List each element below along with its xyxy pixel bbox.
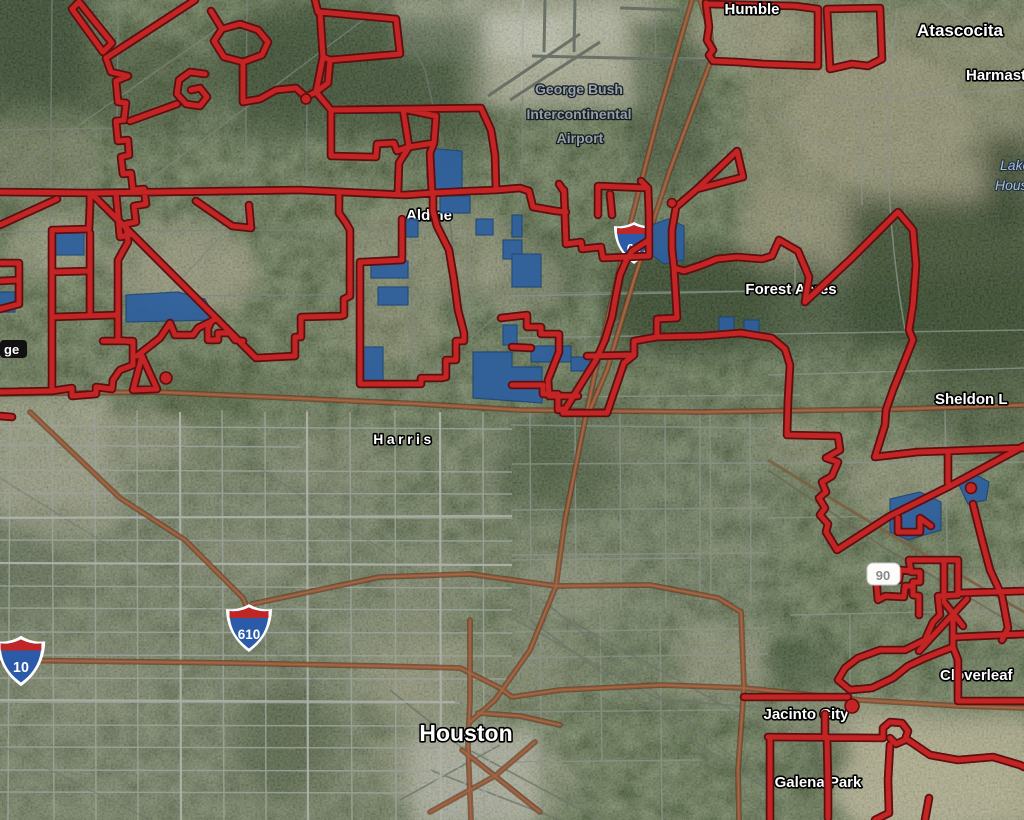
svg-text:Humble: Humble xyxy=(724,1,779,18)
svg-text:George Bush: George Bush xyxy=(535,81,623,97)
svg-text:Airport: Airport xyxy=(557,130,604,146)
svg-text:Intercontinental: Intercontinental xyxy=(526,106,631,122)
svg-text:Harmast: Harmast xyxy=(966,67,1024,84)
svg-text:Jacinto City: Jacinto City xyxy=(763,706,849,723)
svg-text:Galena Park: Galena Park xyxy=(775,774,862,791)
svg-text:Cloverleaf: Cloverleaf xyxy=(940,667,1014,684)
svg-text:Houston: Houston xyxy=(995,177,1024,193)
svg-text:Sheldon L: Sheldon L xyxy=(935,391,1008,408)
svg-text:Harris: Harris xyxy=(373,431,434,447)
svg-text:610: 610 xyxy=(238,627,261,642)
svg-text:10: 10 xyxy=(13,660,29,676)
svg-text:Atascocita: Atascocita xyxy=(917,21,1004,40)
svg-text:ge: ge xyxy=(4,342,19,357)
svg-text:Houston: Houston xyxy=(419,720,512,746)
svg-text:90: 90 xyxy=(876,568,890,583)
svg-text:Lake: Lake xyxy=(1000,157,1024,173)
